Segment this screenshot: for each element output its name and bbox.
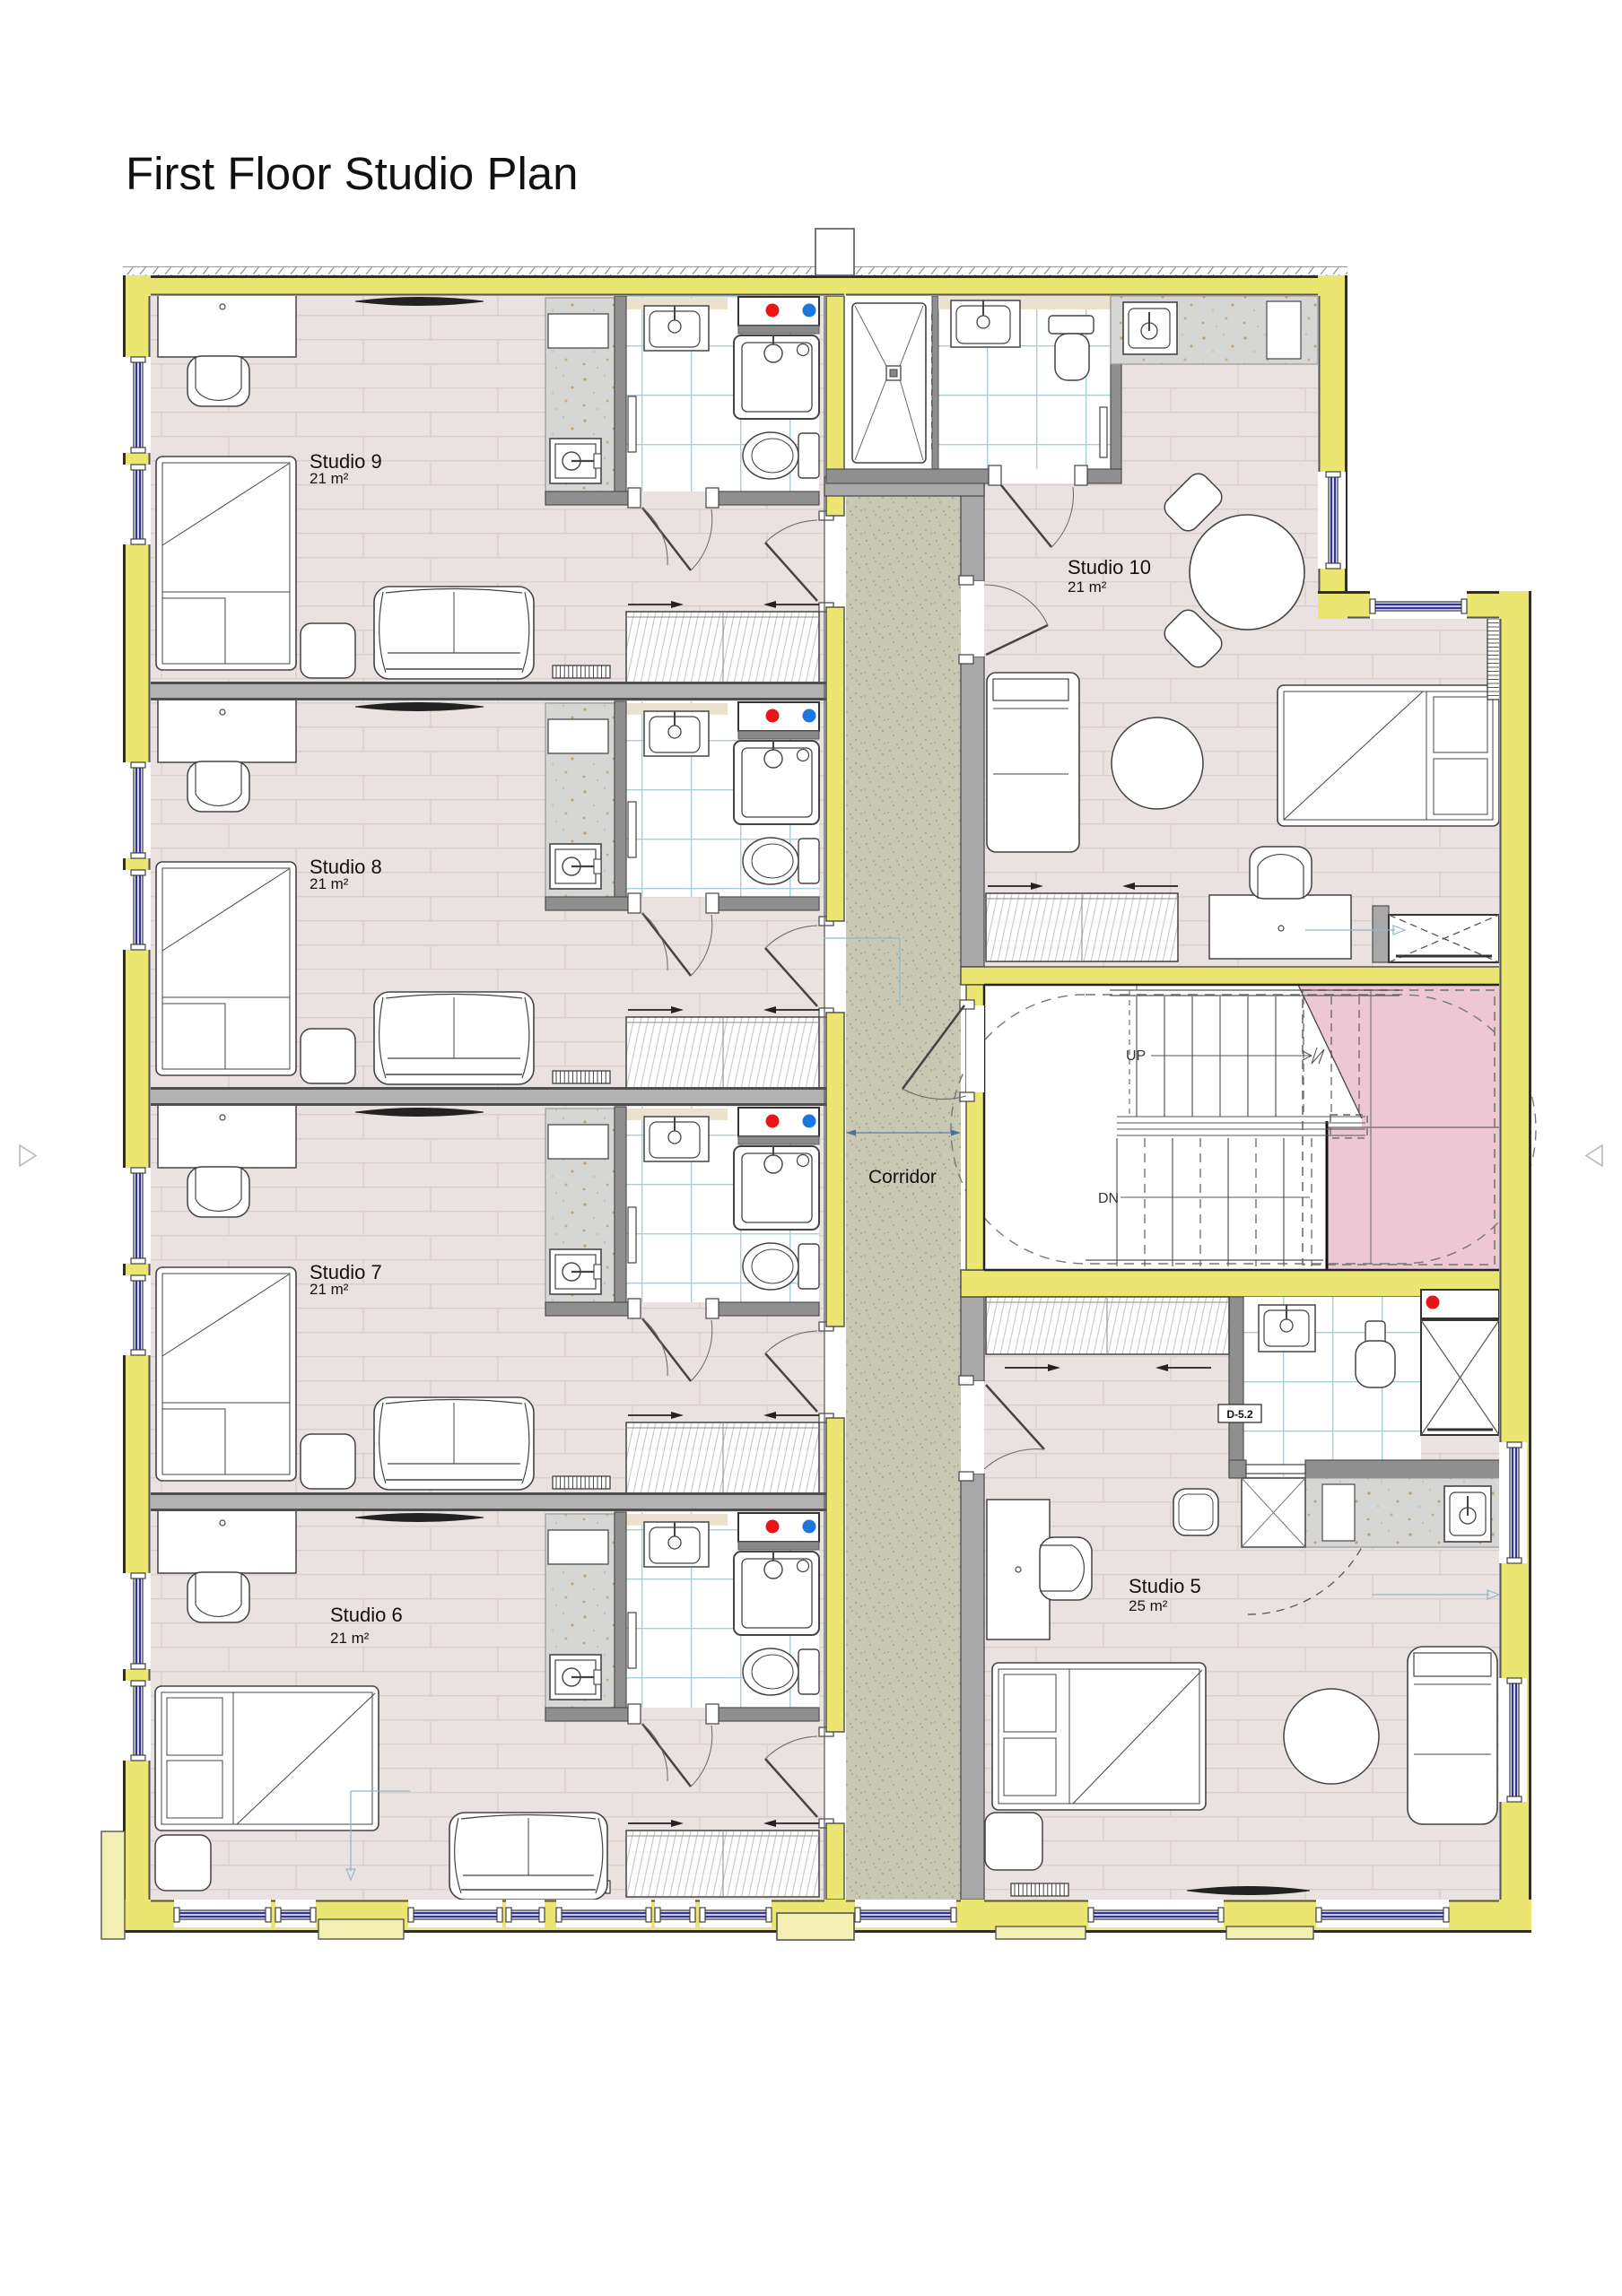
svg-text:21 m²: 21 m²	[1068, 578, 1107, 596]
svg-text:21 m²: 21 m²	[330, 1630, 370, 1647]
svg-text:21 m²: 21 m²	[310, 875, 349, 892]
svg-text:21 m²: 21 m²	[310, 1281, 349, 1298]
svg-text:Studio 10: Studio 10	[1068, 556, 1151, 578]
svg-text:UP: UP	[1126, 1048, 1146, 1064]
svg-text:D-5.2: D-5.2	[1226, 1408, 1253, 1421]
svg-text:Studio 6: Studio 6	[330, 1604, 403, 1626]
svg-text:21 m²: 21 m²	[310, 470, 349, 487]
svg-text:25 m²: 25 m²	[1129, 1597, 1168, 1614]
svg-text:First Floor Studio Plan: First Floor Studio Plan	[126, 148, 579, 199]
svg-text:Corridor: Corridor	[868, 1167, 937, 1187]
svg-text:Studio 5: Studio 5	[1129, 1575, 1201, 1597]
svg-text:DN: DN	[1098, 1191, 1119, 1206]
